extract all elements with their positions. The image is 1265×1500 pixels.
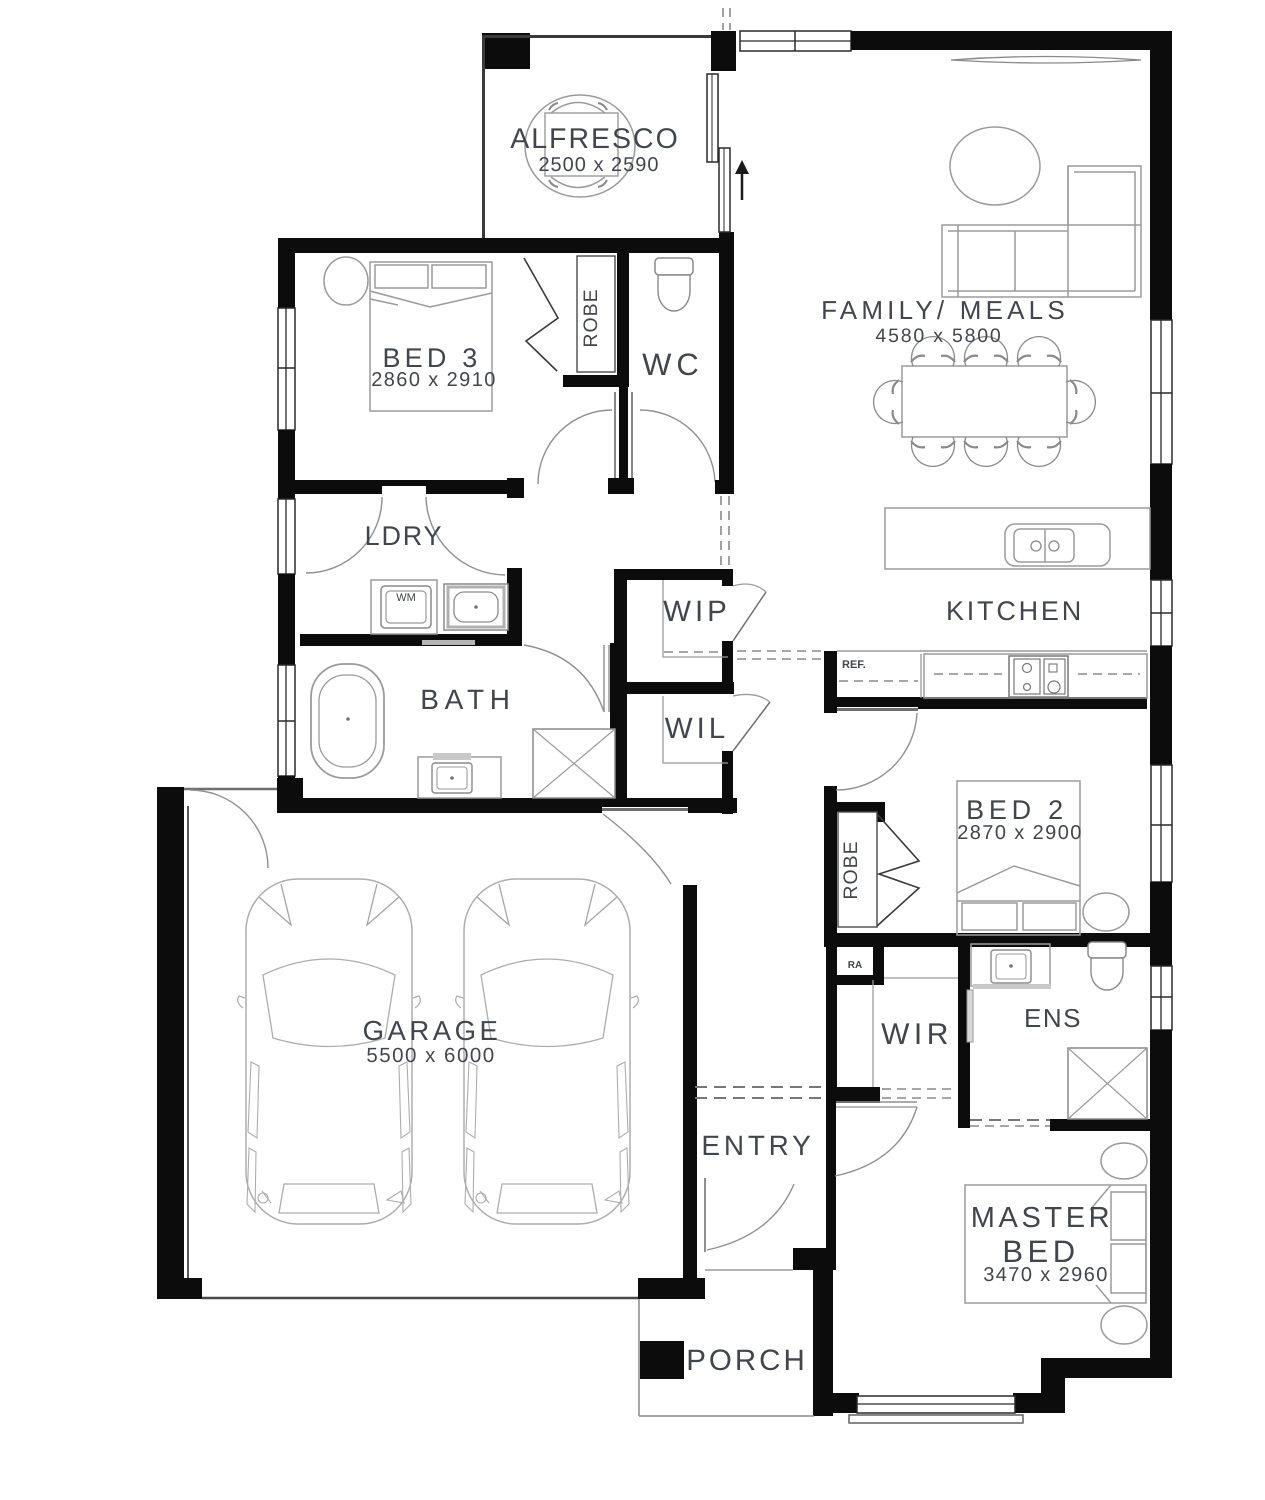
svg-text:WM: WM [396,592,416,604]
svg-text:BATH: BATH [420,684,515,715]
svg-text:4580 x 5800: 4580 x 5800 [875,325,1002,347]
svg-text:PORCH: PORCH [686,1344,808,1377]
svg-text:MASTER: MASTER [971,1202,1113,1234]
svg-text:ENTRY: ENTRY [701,1130,814,1161]
svg-text:WIR: WIR [881,1018,953,1051]
svg-text:WIL: WIL [665,712,729,745]
svg-text:ALFRESCO: ALFRESCO [510,123,680,155]
svg-text:2870 x 2900: 2870 x 2900 [957,822,1083,844]
svg-text:2500 x 2590: 2500 x 2590 [538,154,659,176]
svg-text:ROBE: ROBE [580,288,602,347]
svg-text:2860 x 2910: 2860 x 2910 [371,369,497,391]
svg-text:RA: RA [848,960,862,971]
svg-text:5500 x 6000: 5500 x 6000 [366,1044,495,1067]
svg-text:WC: WC [642,347,704,382]
svg-text:GARAGE: GARAGE [363,1015,502,1046]
svg-text:ENS: ENS [1024,1003,1082,1033]
svg-text:REF.: REF. [842,659,866,671]
svg-text:BED 2: BED 2 [966,795,1068,825]
svg-text:KITCHEN: KITCHEN [946,596,1084,626]
svg-text:LDRY: LDRY [365,521,444,551]
svg-text:ROBE: ROBE [840,840,862,899]
svg-text:WIP: WIP [663,595,731,628]
svg-text:3470 x 2960: 3470 x 2960 [983,1264,1109,1286]
svg-text:FAMILY/ MEALS: FAMILY/ MEALS [821,295,1069,325]
